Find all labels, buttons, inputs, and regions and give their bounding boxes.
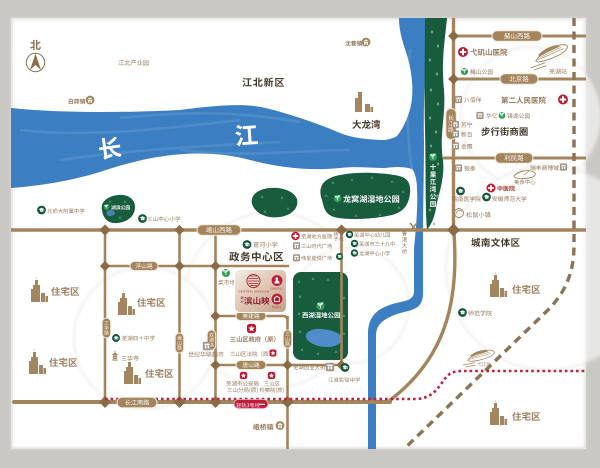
svg-text:CENTRAL MANSION: CENTRAL MANSION	[239, 290, 270, 294]
